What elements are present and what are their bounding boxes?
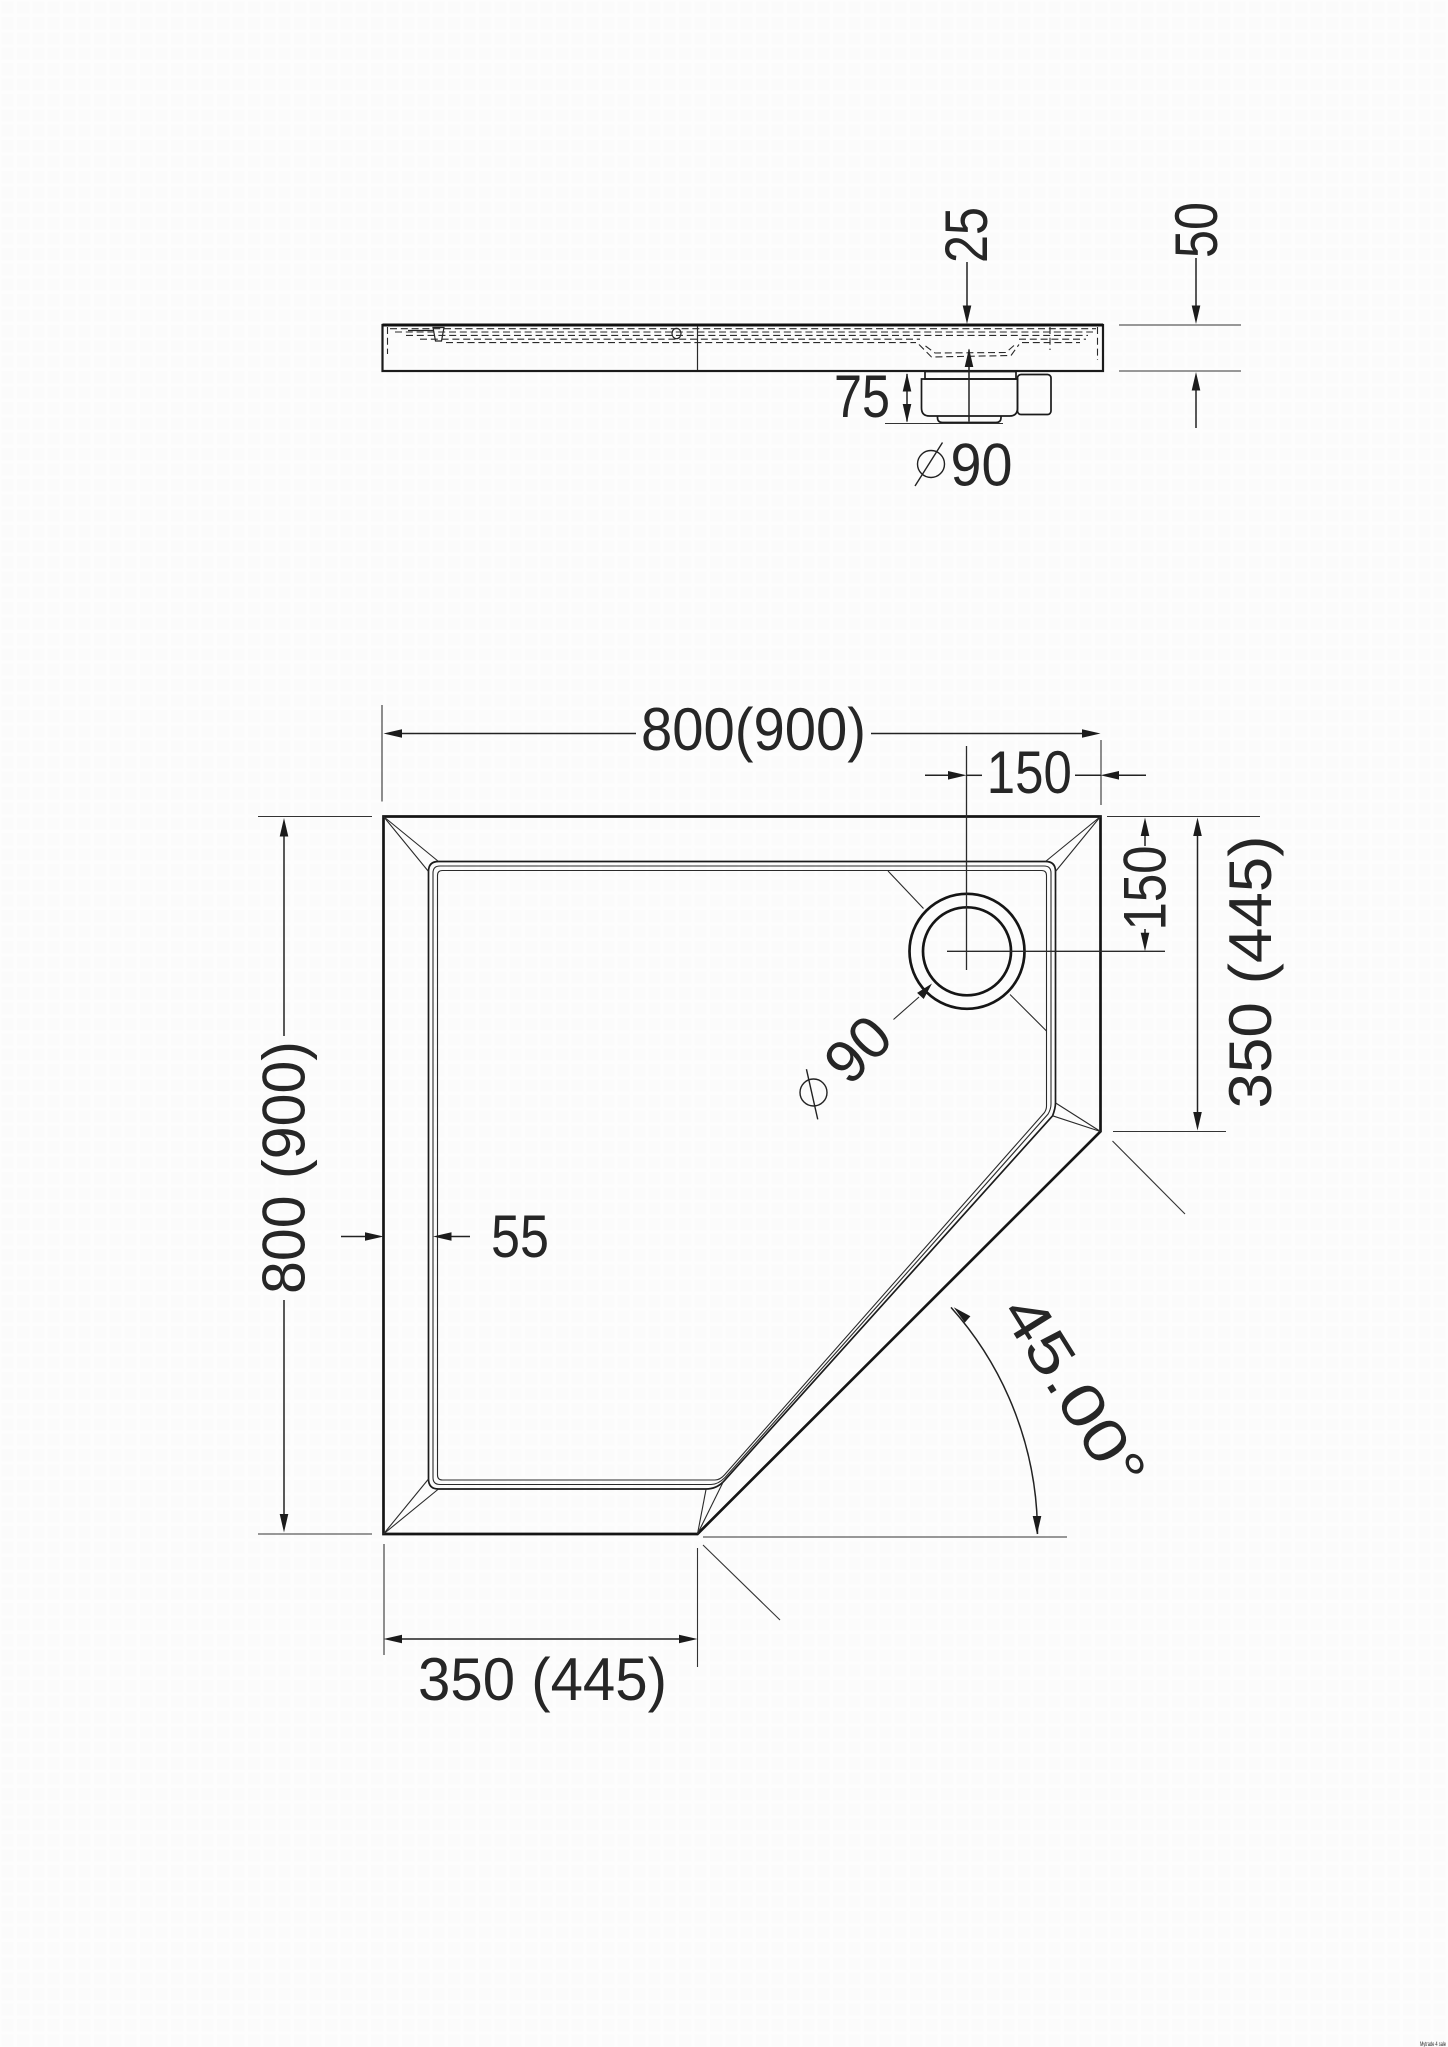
svg-text:55: 55 — [491, 1203, 549, 1270]
svg-text:75: 75 — [834, 363, 890, 430]
svg-text:800(900): 800(900) — [641, 696, 866, 763]
svg-text:Mytrade 4 sale: Mytrade 4 sale — [1420, 2042, 1446, 2047]
svg-text:150: 150 — [1112, 846, 1179, 931]
svg-text:350 (445): 350 (445) — [418, 1646, 667, 1713]
svg-text:150: 150 — [987, 739, 1072, 806]
svg-text:350 (445): 350 (445) — [1217, 836, 1284, 1109]
svg-text:90: 90 — [951, 432, 1013, 499]
svg-text:800 (900): 800 (900) — [251, 1041, 318, 1294]
svg-text:25: 25 — [933, 207, 1000, 263]
svg-text:50: 50 — [1163, 202, 1230, 258]
